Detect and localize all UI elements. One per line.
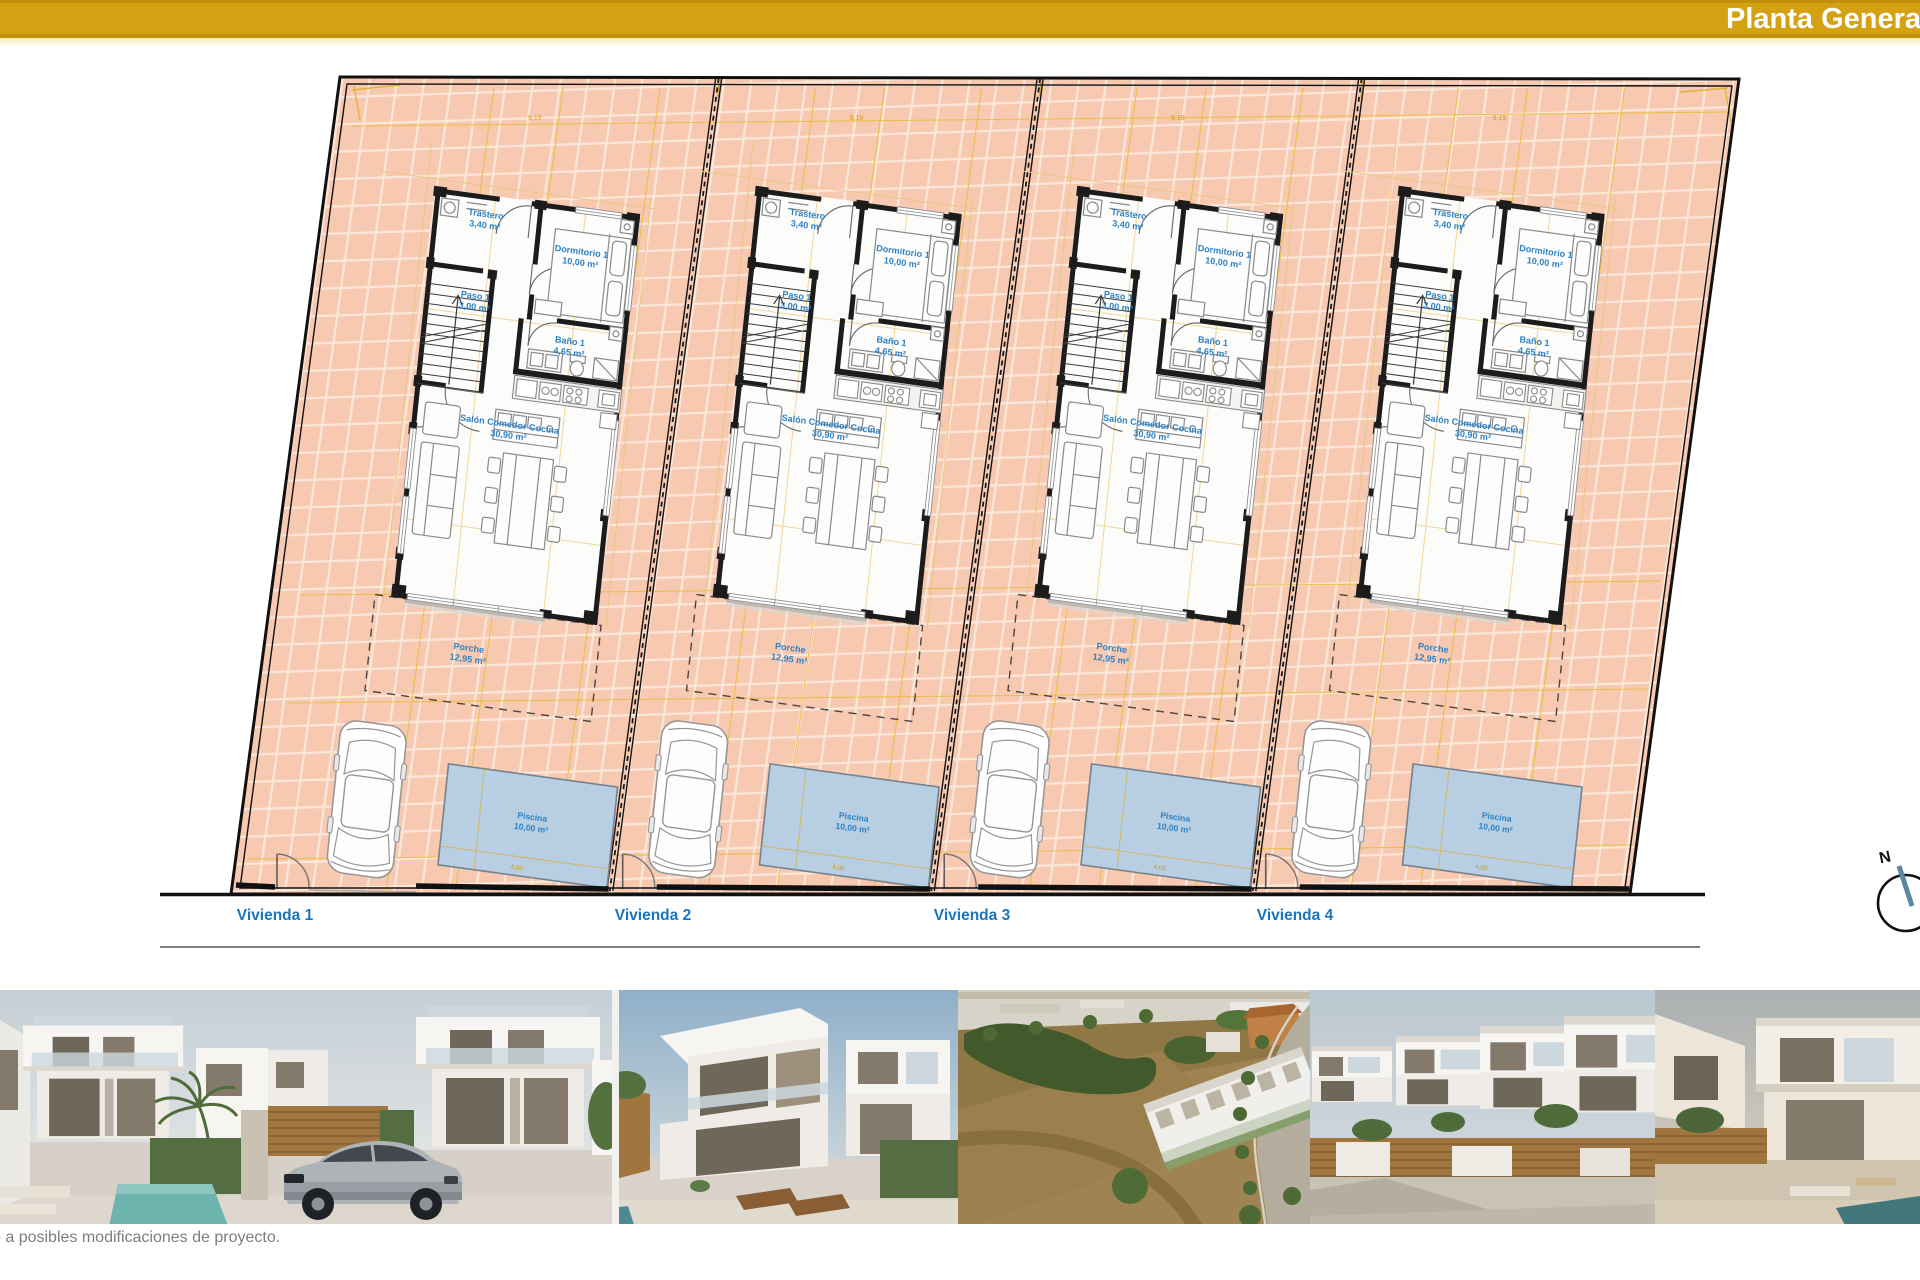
svg-text:Vivienda 2: Vivienda 2 bbox=[615, 907, 691, 924]
svg-text:Planta General: Planta General bbox=[1726, 3, 1920, 35]
svg-text:Vivienda 1: Vivienda 1 bbox=[237, 907, 314, 924]
svg-text:Vivienda 3: Vivienda 3 bbox=[934, 907, 1011, 924]
svg-text:Vivienda 4: Vivienda 4 bbox=[1257, 907, 1334, 924]
svg-text:o a posibles modificaciones de: o a posibles modificaciones de proyecto. bbox=[0, 1229, 280, 1246]
